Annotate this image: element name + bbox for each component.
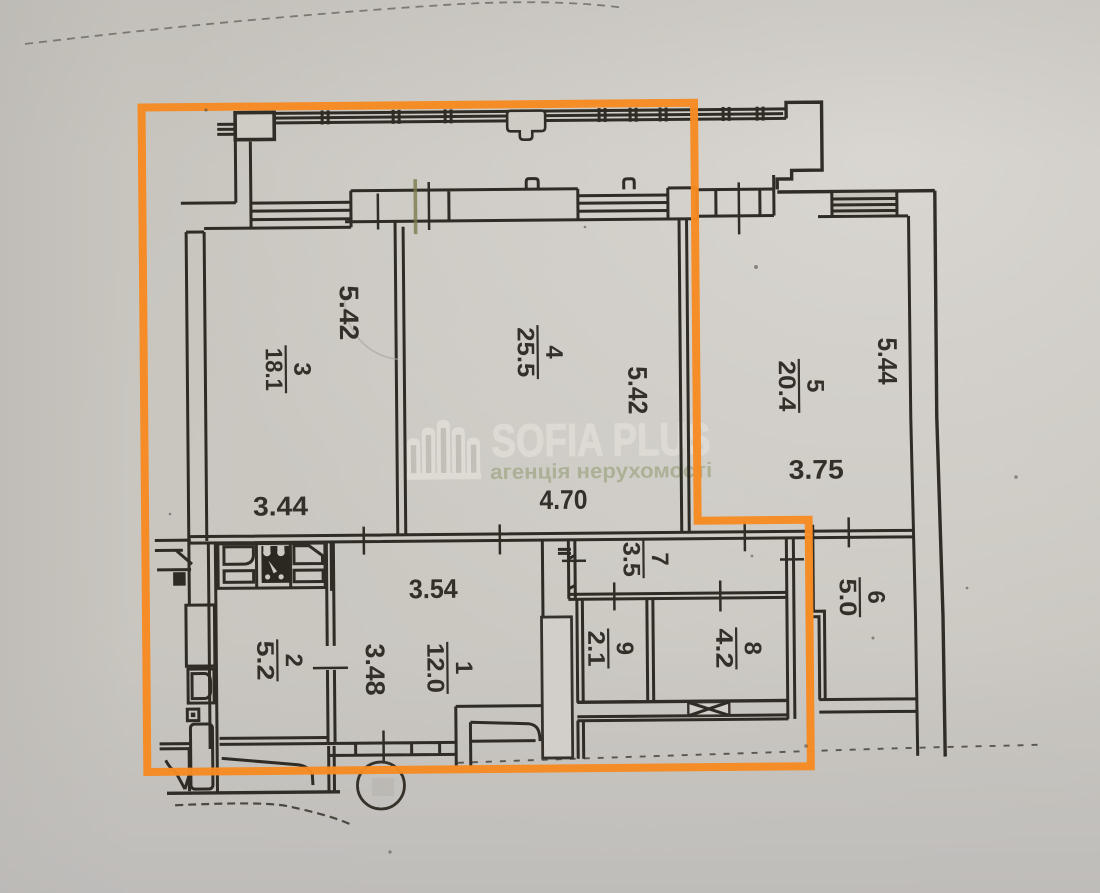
svg-text:3.5: 3.5 <box>617 542 644 577</box>
svg-text:2.1: 2.1 <box>582 630 609 666</box>
svg-text:6: 6 <box>862 590 889 604</box>
svg-text:8: 8 <box>739 641 766 655</box>
svg-text:4.70: 4.70 <box>539 485 587 515</box>
svg-text:4: 4 <box>540 345 567 359</box>
svg-text:18.1: 18.1 <box>260 348 287 391</box>
svg-text:5.42: 5.42 <box>622 366 652 414</box>
svg-text:9: 9 <box>611 642 638 656</box>
svg-text:5.42: 5.42 <box>334 285 364 340</box>
svg-text:1: 1 <box>450 661 477 675</box>
svg-text:3.44: 3.44 <box>253 491 308 521</box>
svg-text:3.75: 3.75 <box>789 454 844 484</box>
svg-text:5.44: 5.44 <box>872 337 902 384</box>
svg-text:5.2: 5.2 <box>251 640 278 680</box>
svg-text:25.5: 25.5 <box>511 327 538 377</box>
svg-text:5: 5 <box>801 379 828 393</box>
svg-text:3.54: 3.54 <box>409 574 458 604</box>
svg-text:агенція нерухомості: агенція нерухомості <box>490 459 712 484</box>
svg-text:4.2: 4.2 <box>710 628 737 668</box>
svg-text:20.4: 20.4 <box>773 360 800 412</box>
svg-text:2: 2 <box>280 653 307 667</box>
svg-text:12.0: 12.0 <box>421 643 448 693</box>
svg-text:3: 3 <box>288 362 315 376</box>
svg-text:7: 7 <box>646 552 673 566</box>
svg-text:3.48: 3.48 <box>360 643 390 695</box>
svg-text:5.0: 5.0 <box>834 578 861 616</box>
